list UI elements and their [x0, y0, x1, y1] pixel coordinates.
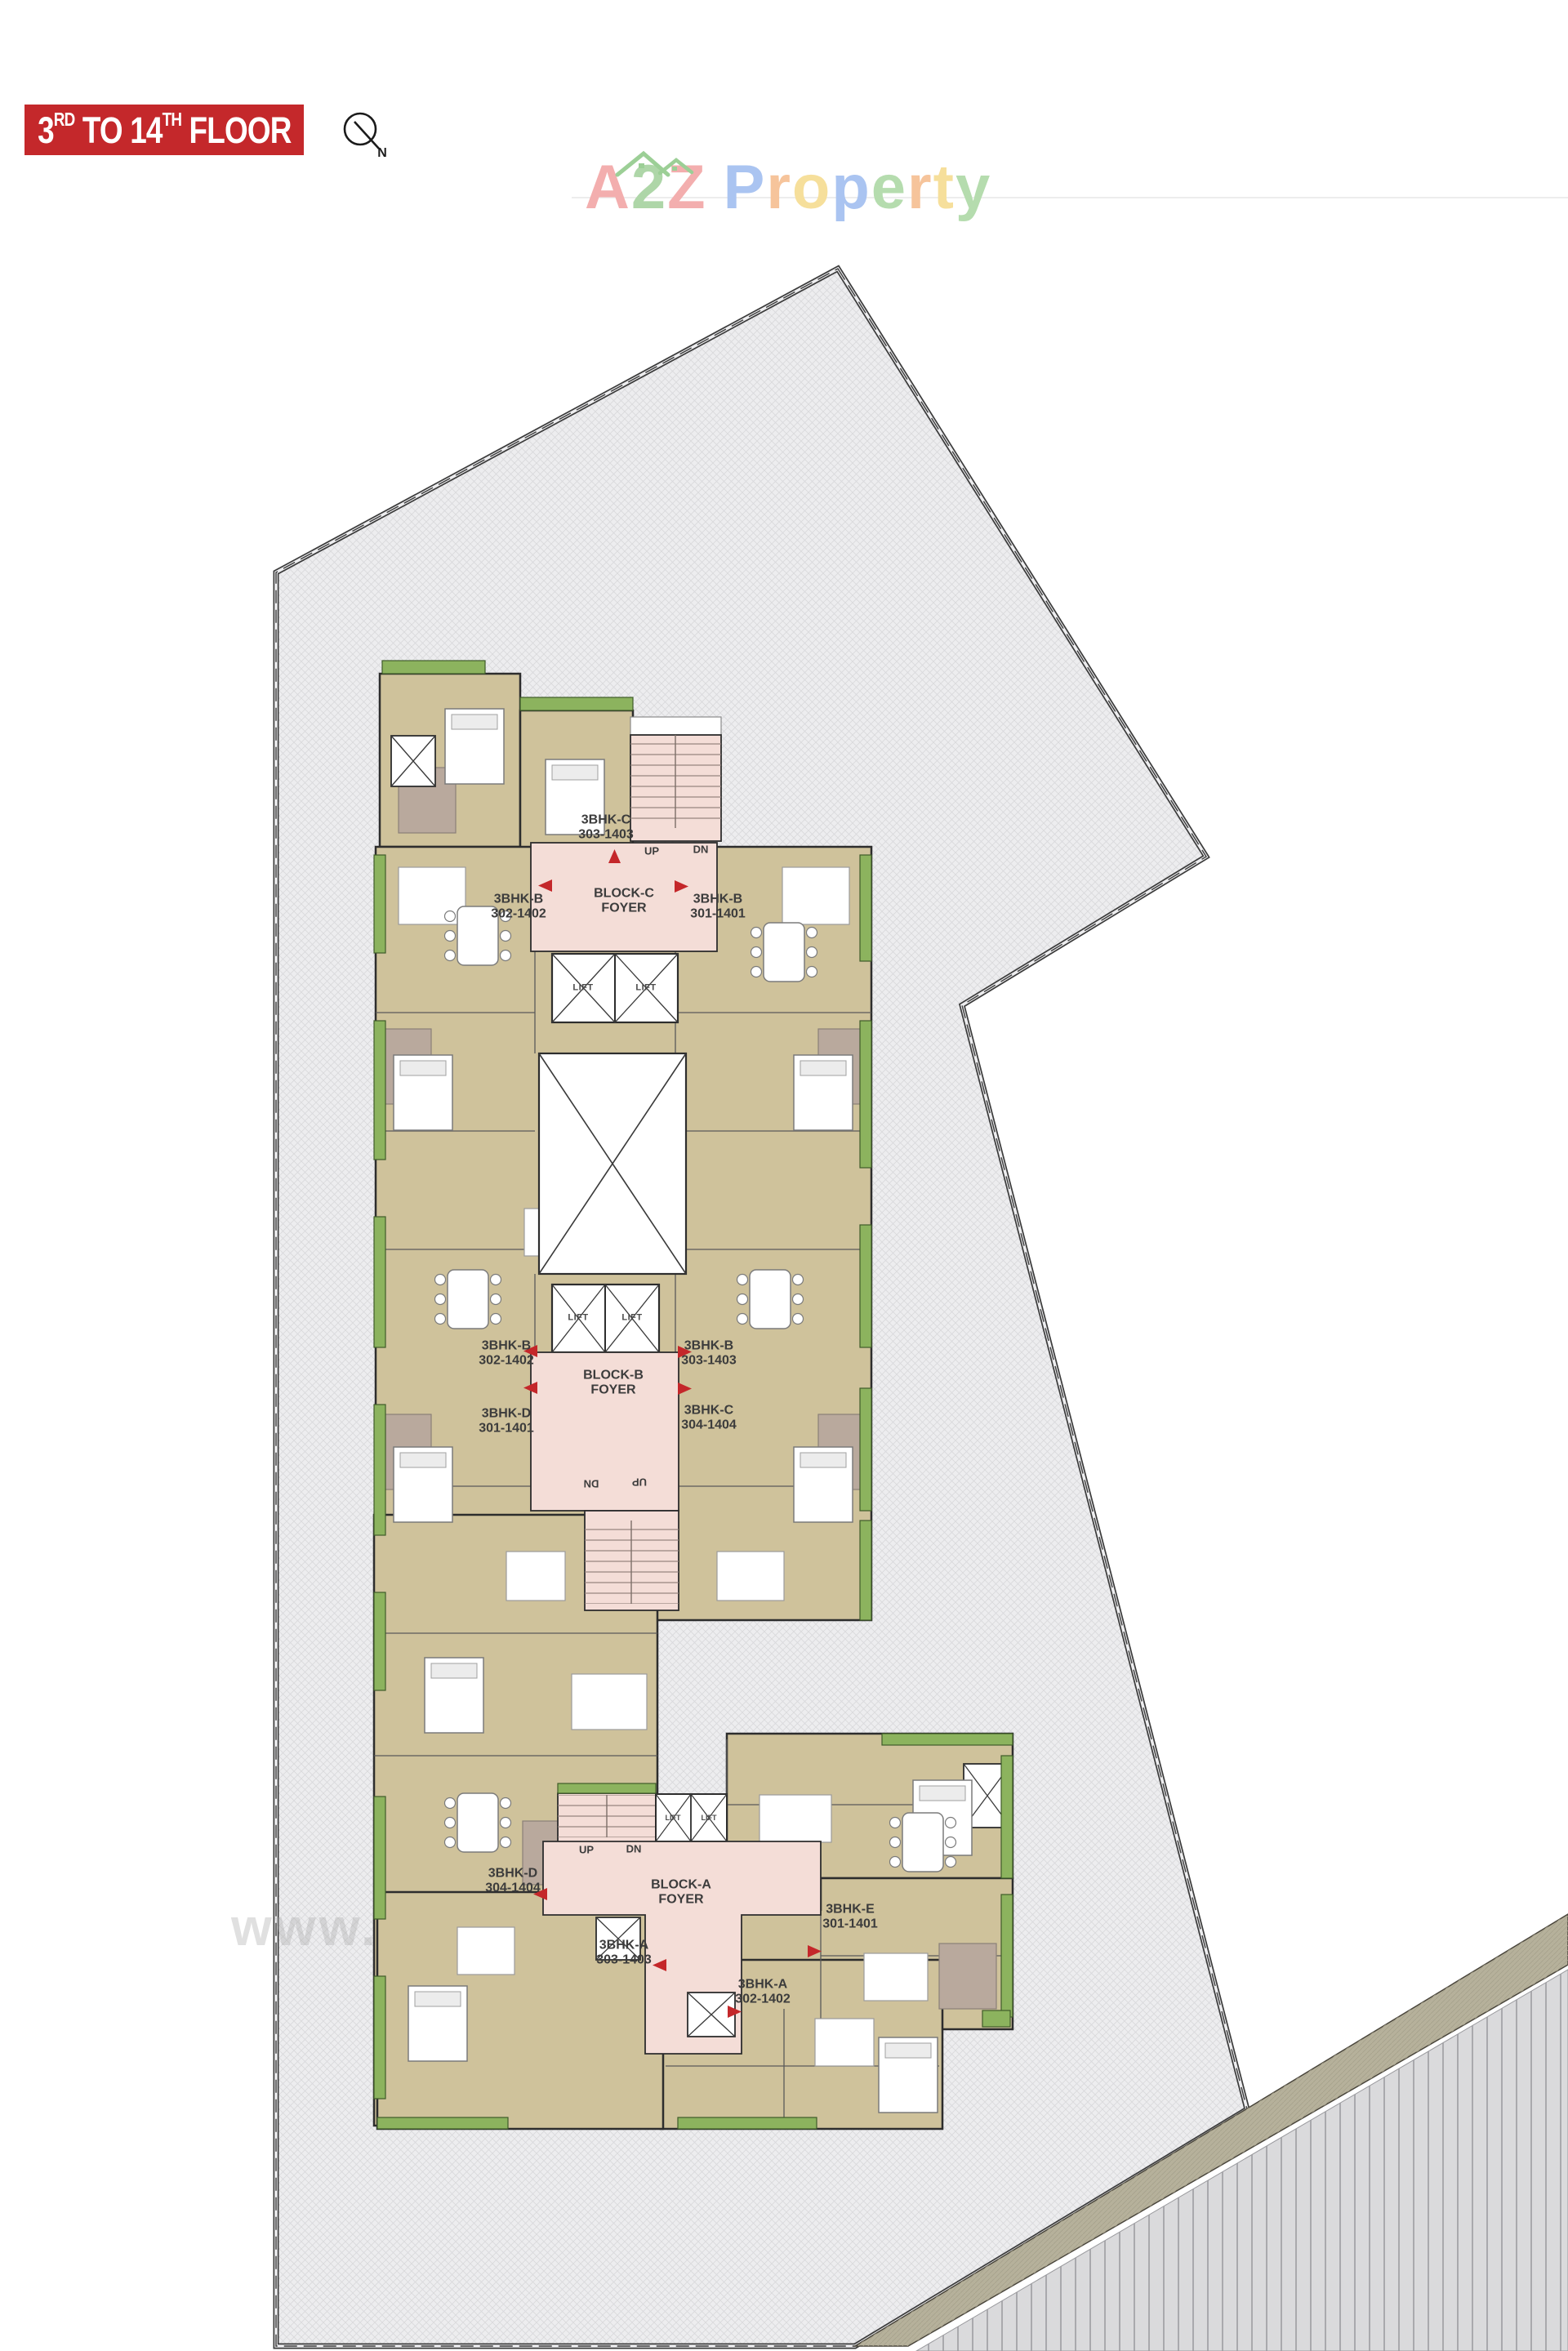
- north-label: N: [377, 146, 387, 161]
- lift-label-b2: LIFT: [621, 1313, 642, 1324]
- block-b-stairs: [585, 1511, 679, 1610]
- unit-label-302b-upper: 3BHK-B302-1402: [491, 893, 546, 923]
- unit-label-303a-blocka: 3BHK-A303-1403: [596, 1939, 652, 1969]
- lift-label-a1: LIFT: [666, 1814, 681, 1822]
- logo-letter: t: [933, 153, 955, 222]
- unit-label-301e-blocka: 3BHK-E301-1401: [822, 1903, 878, 1933]
- lift-label-a2: LIFT: [702, 1814, 717, 1822]
- logo-letter: P: [724, 153, 767, 222]
- stairs-dn-label-a: DN: [626, 1844, 642, 1856]
- logo-roof-icon: [614, 147, 696, 178]
- logo-letter: r: [766, 153, 792, 222]
- logo-letter: e: [871, 153, 907, 222]
- unit-label-304c-mid: 3BHK-C304-1404: [681, 1404, 737, 1434]
- block-a-foyer-label: BLOCK-AFOYER: [651, 1878, 711, 1908]
- unit-label-303c: 3BHK-C303-1403: [578, 813, 634, 844]
- unit-label-301d-mid: 3BHK-D301-1401: [479, 1407, 534, 1437]
- block-b-foyer-label: BLOCK-BFOYER: [583, 1369, 644, 1399]
- floor-plan-page: www.A2ZProperty.in: [0, 0, 1568, 2351]
- unit-label-304d-blocka: 3BHK-D304-1404: [485, 1867, 541, 1897]
- stairs-dn-label-b: DN: [584, 1477, 599, 1489]
- logo-letter: y: [955, 153, 991, 222]
- unit-label-302b-mid: 3BHK-B302-1402: [479, 1339, 534, 1369]
- block-c-foyer-label: BLOCK-CFOYER: [594, 887, 654, 917]
- duct-shaft-icon: [391, 736, 435, 786]
- stairs-up-label-c: UP: [644, 846, 659, 858]
- lift-label-b1: LIFT: [568, 1313, 588, 1324]
- unit-label-303b-mid: 3BHK-B303-1403: [681, 1339, 737, 1369]
- logo-letter: p: [831, 153, 871, 222]
- lift-label-c1: LIFT: [572, 983, 593, 994]
- unit-label-302a-blocka: 3BHK-A302-1402: [735, 1978, 791, 2008]
- logo-letter: r: [907, 153, 933, 222]
- a2z-property-logo: A2ZProperty: [585, 157, 991, 219]
- unit-label-301b-upper: 3BHK-B301-1401: [690, 893, 746, 923]
- courtyard-icon: [539, 1053, 686, 1274]
- stairs-up-label-a: UP: [579, 1845, 594, 1857]
- logo-letter: o: [792, 153, 831, 222]
- stairs-up-label-b: UP: [632, 1476, 647, 1488]
- floor-range-text: 3RD TO 14TH FLOOR: [38, 112, 292, 149]
- lift-label-c2: LIFT: [635, 983, 656, 994]
- north-compass-icon: [345, 114, 379, 149]
- block-a-stairs: [558, 1793, 656, 1842]
- block-c-stairs: [630, 717, 721, 841]
- stairs-dn-label-c: DN: [693, 844, 709, 857]
- floor-range-banner: 3RD TO 14TH FLOOR: [24, 105, 304, 155]
- block-c-lifts-icon: [552, 954, 678, 1022]
